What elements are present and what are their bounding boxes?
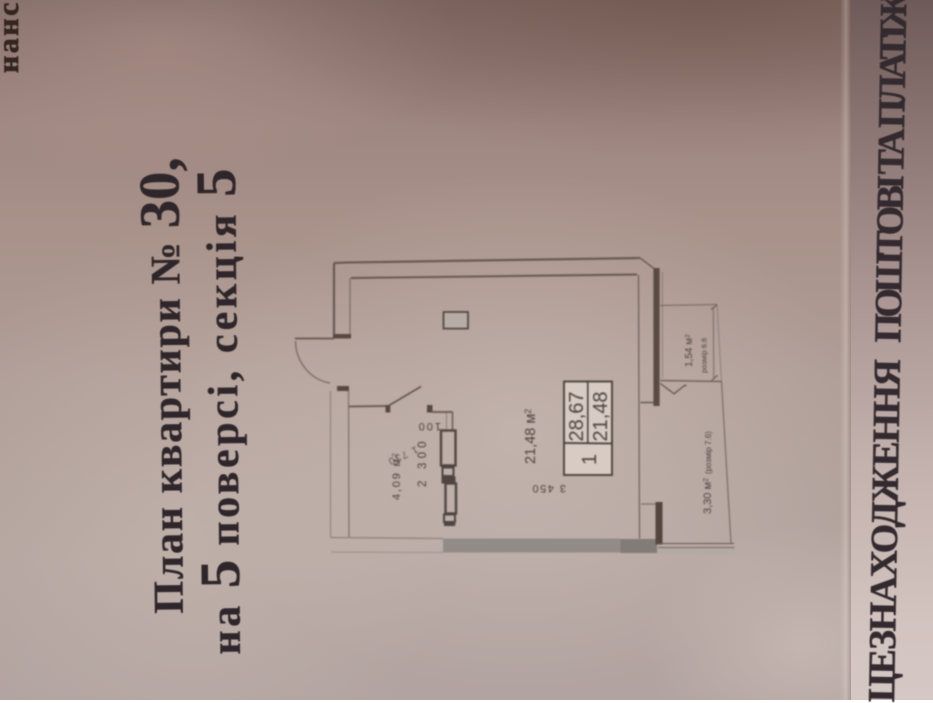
svg-text:2 300: 2 300 bbox=[417, 437, 429, 487]
svg-text:3 450: 3 450 bbox=[531, 482, 566, 494]
svg-text:21,48 м2: 21,48 м2 bbox=[523, 409, 539, 464]
svg-text:розмір 6.6: розмір 6.6 bbox=[700, 338, 709, 373]
svg-text:1: 1 bbox=[579, 454, 601, 465]
svg-text:1,54 м2: 1,54 м2 bbox=[684, 334, 695, 367]
svg-text:21,48: 21,48 bbox=[590, 391, 612, 441]
svg-text:100: 100 bbox=[417, 420, 441, 432]
svg-text:3,30 м2(розмір 7.6): 3,30 м2(розмір 7.6) bbox=[702, 431, 714, 514]
svg-text:28,67: 28,67 bbox=[566, 391, 588, 441]
